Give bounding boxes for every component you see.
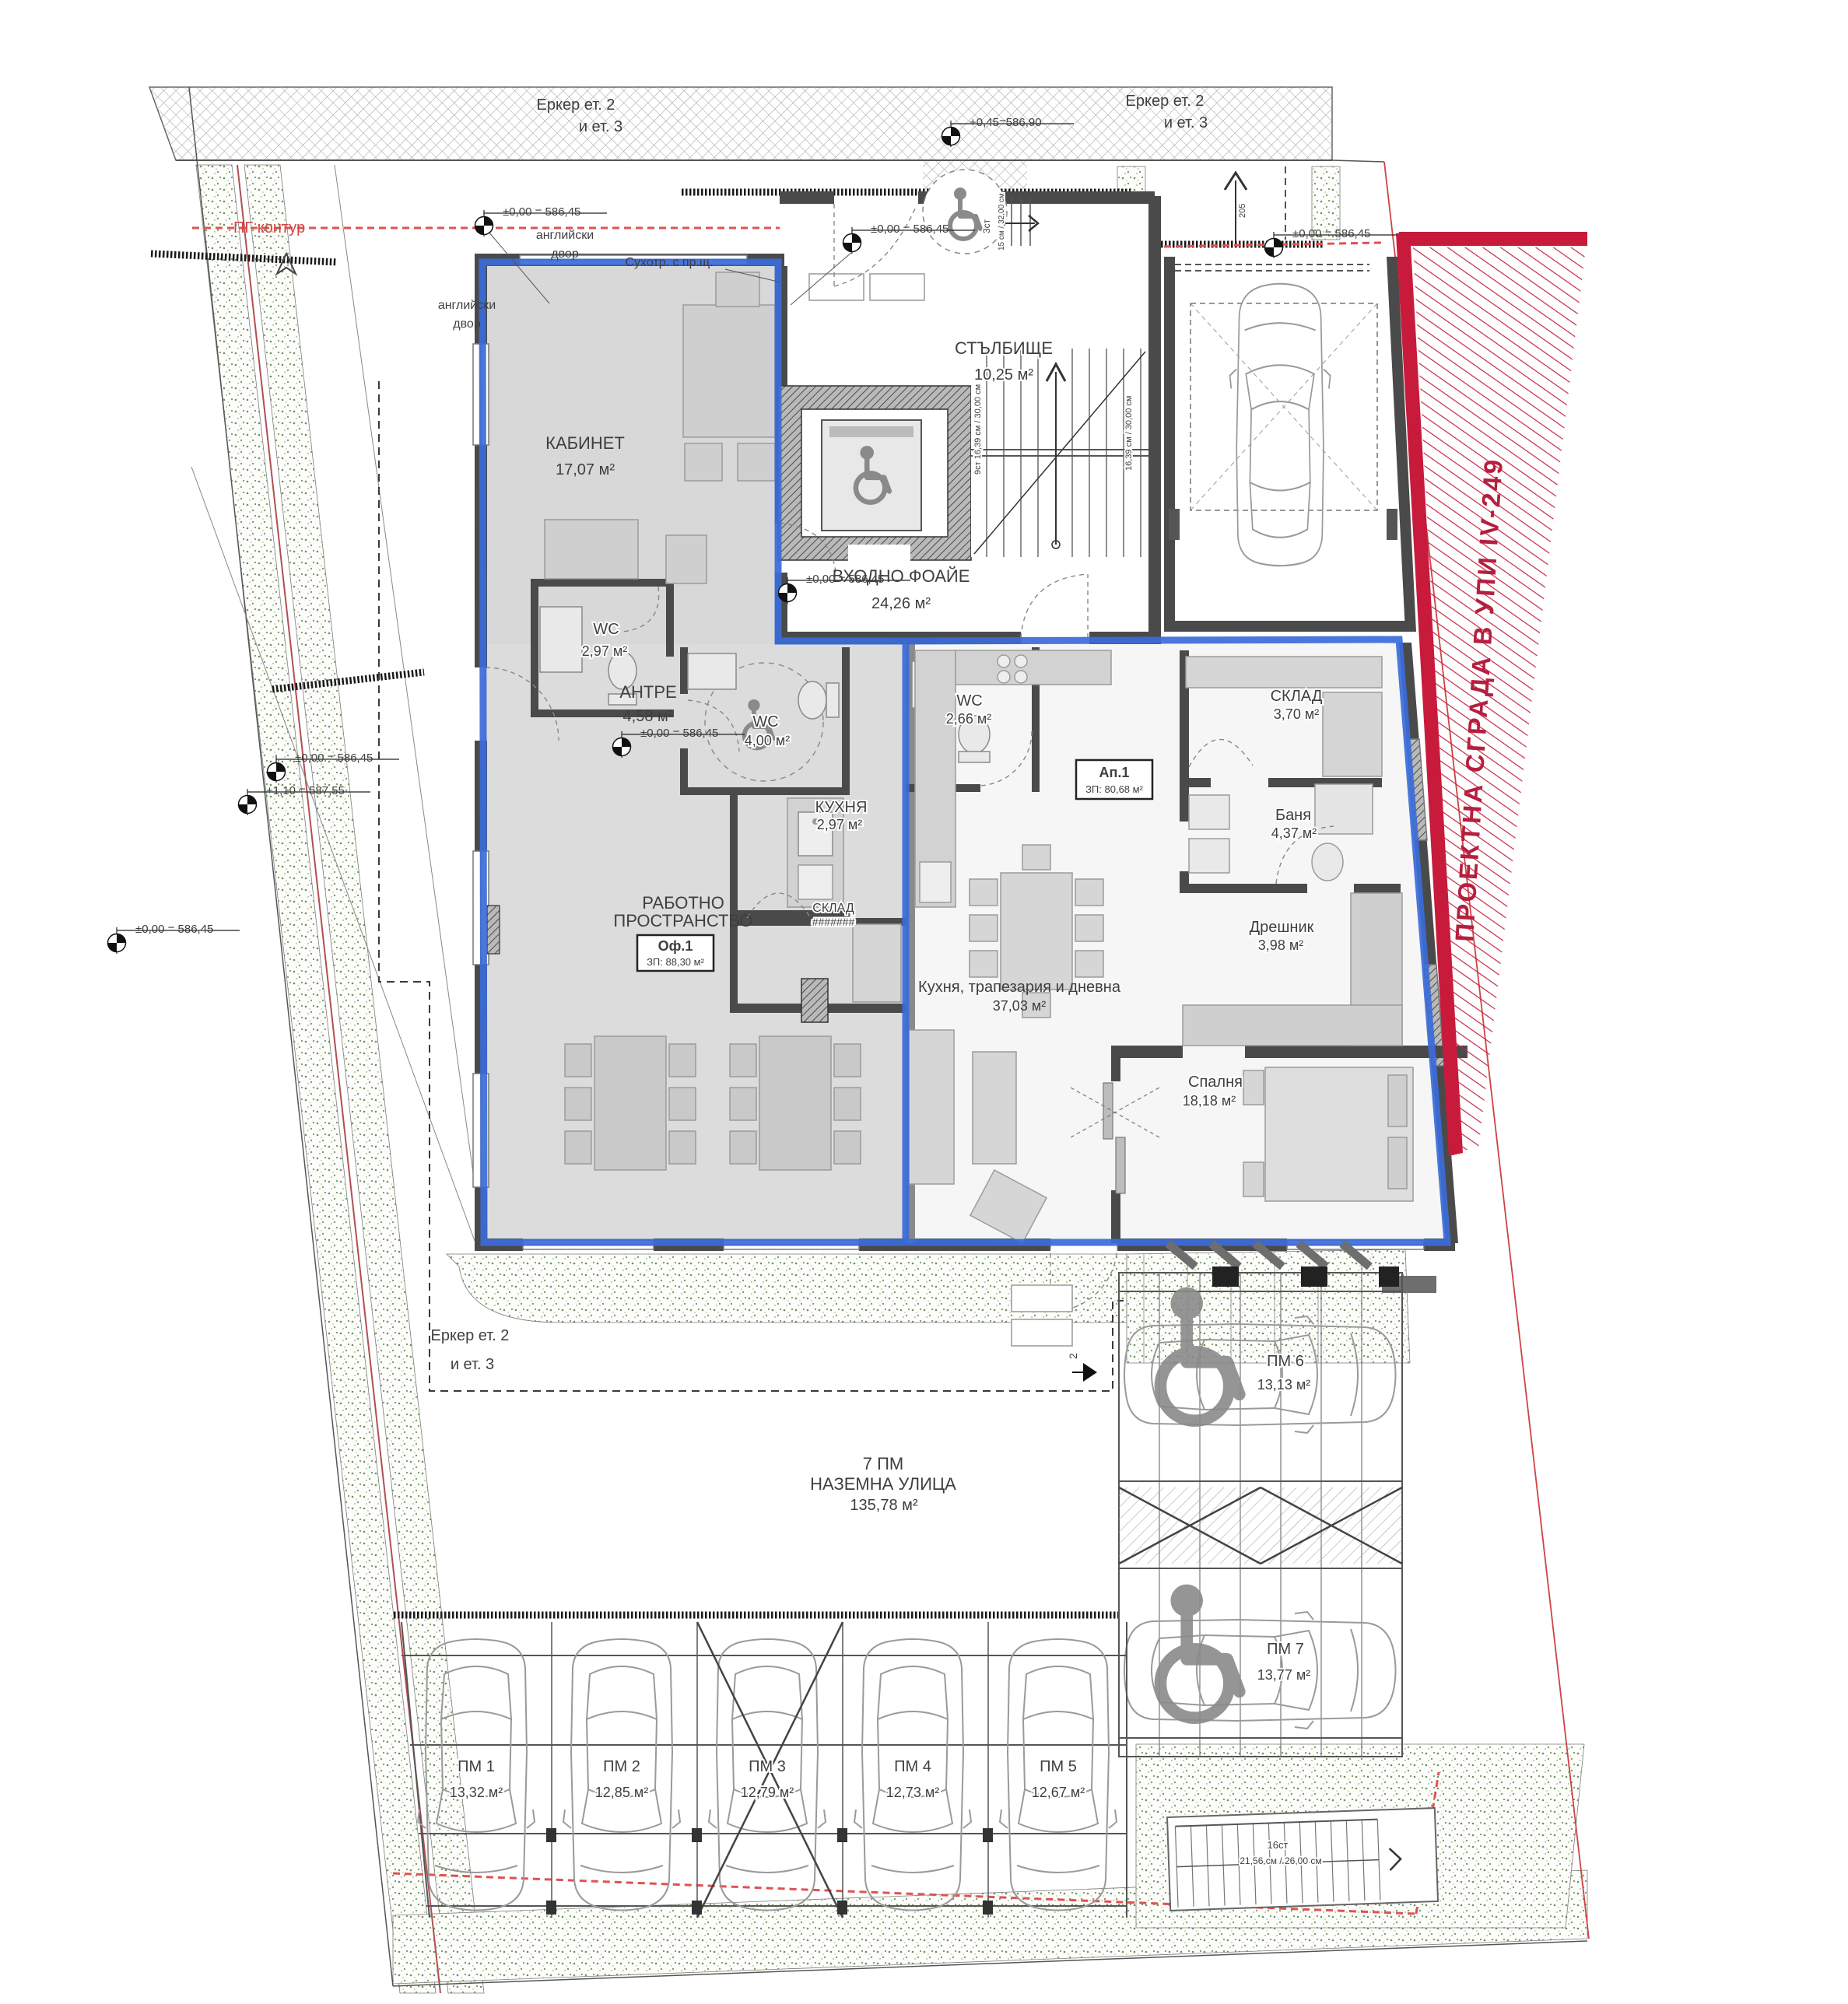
entry-steps-note: 3ст <box>981 219 992 233</box>
parking-pm3-area: 12,79 м² <box>741 1785 794 1800</box>
room-bedroom-name: Спалня <box>1188 1074 1243 1091</box>
room-cabinet-name: КАБИНЕТ <box>545 433 625 453</box>
level-zero-5: ±0,00 = 586,45 <box>640 727 718 740</box>
erker-note-1-line2: и ет. 3 <box>579 118 622 135</box>
level-zero-1: ±0,00 = 586,45 <box>503 205 580 219</box>
room-wc-cabinet-name: WC <box>593 621 619 638</box>
erker-note-1-line1: Еркер ет. 2 <box>537 96 615 114</box>
erker-note-3-line1: Еркер ет. 2 <box>431 1327 510 1344</box>
parking-pm7-name: ПМ 7 <box>1267 1641 1304 1658</box>
parking-pm4-area: 12,73 м² <box>886 1785 939 1800</box>
room-antre-area: 4,58 м² <box>623 708 674 725</box>
english-yard-2-line2: двор <box>453 317 481 331</box>
room-workspace-line2: ПРОСТРАНСТВО <box>613 911 752 930</box>
parking-pm2-area: 12,85 м² <box>595 1785 648 1800</box>
room-bedroom-area: 18,18 м² <box>1183 1093 1236 1109</box>
room-stairwell-area: 10,25 м² <box>974 366 1033 384</box>
radiator <box>487 906 500 954</box>
room-foyer-name: ВХОДНО ФОАЙЕ <box>833 566 970 586</box>
parking-pm5-name: ПМ 5 <box>1040 1758 1077 1775</box>
level-zero-2: ±0,00 = 586,45 <box>871 222 949 236</box>
parking-pm3-name: ПМ 3 <box>749 1758 786 1775</box>
room-living-name: Кухня, трапезария и дневна <box>918 979 1121 996</box>
erker-note-2-line2: и ет. 3 <box>1164 114 1208 131</box>
erker-note-3-line2: и ет. 3 <box>451 1356 494 1373</box>
pg-contour-label: ПГ контур <box>233 219 305 236</box>
radiator <box>801 979 828 1022</box>
room-kitchen-niche-area: 2,97 м² <box>817 817 862 832</box>
parking-pm1-name: ПМ 1 <box>458 1758 495 1775</box>
parking-pm5-area: 12,67 м² <box>1032 1785 1085 1800</box>
parking-pm7-area: 13,77 м² <box>1257 1667 1310 1683</box>
room-stairwell-name: СТЪЛБИЩЕ <box>955 338 1053 358</box>
stair-flight-note-left: 9ст 16,39 см / 30,00 см <box>973 384 983 475</box>
stair-flight-note-right: 16,39 см / 30,00 см <box>1124 396 1134 471</box>
storage-shelf <box>853 924 901 1002</box>
parking-pm1-area: 13,32 м² <box>450 1785 503 1800</box>
room-dressing-area: 3,98 м² <box>1258 937 1303 953</box>
english-yard-1-line1: английски <box>536 229 594 242</box>
room-storage-office-area: ####### <box>812 916 855 928</box>
room-foyer-area: 24,26 м² <box>871 595 931 612</box>
parking-pm4-name: ПМ 4 <box>894 1758 931 1775</box>
apartment-unit-area: ЗП: 80,68 м² <box>1085 783 1144 795</box>
room-storage-office-name: СКЛАД <box>812 902 854 915</box>
ramp-width-dim: 205 <box>1238 204 1247 218</box>
street-line1: 7 ПМ <box>863 1454 904 1473</box>
street-line2: НАЗЕМНА УЛИЦА <box>810 1474 956 1494</box>
room-wc-cabinet-area: 2,97 м² <box>582 643 627 659</box>
room-living-area: 37,03 м² <box>993 998 1046 1014</box>
room-wc-apartment-area: 2,66 м² <box>946 711 991 727</box>
room-antre-name: АНТРЕ <box>619 682 676 702</box>
level-zero-7: ±0,00 = 586,45 <box>135 923 213 936</box>
room-workspace-line1: РАБОТНО <box>642 893 724 913</box>
room-kitchen-niche-name: КУХНЯ <box>815 799 868 816</box>
parking-pm2-name: ПМ 2 <box>603 1758 640 1775</box>
suhotr-note: Сухотр. с пр.щ. <box>625 256 713 269</box>
room-cabinet-area: 17,07 м² <box>556 461 615 478</box>
entry-steps-dim: 15 см / 32,00 см <box>998 193 1006 250</box>
external-stairs-dim: 21,56 см / 26,00 см <box>1240 1855 1321 1866</box>
parking-pm6-name: ПМ 6 <box>1267 1353 1304 1370</box>
room-storage-ap-area: 3,70 м² <box>1274 706 1319 722</box>
room-storage-ap-name: СКЛАД <box>1271 688 1323 705</box>
office-unit-tag: Оф.1 ЗП: 88,30 м² <box>637 935 714 971</box>
apartment-unit-name: Ап.1 <box>1099 765 1130 780</box>
room-wc-accessible-area: 4,00 м² <box>745 733 790 748</box>
english-yard-1-line2: двор <box>551 247 579 261</box>
office-unit-area: ЗП: 88,30 м² <box>647 956 705 968</box>
room-bathroom-name: Баня <box>1275 807 1311 824</box>
room-bathroom-area: 4,37 м² <box>1271 825 1317 841</box>
floor-plan-drawing: Еркер ет. 2 и ет. 3 Еркер ет. 2 и ет. 3 … <box>0 0 1848 2004</box>
level-plus045: +0,45=586,90 <box>970 116 1042 129</box>
parking-pm6-area: 13,13 м² <box>1257 1377 1310 1393</box>
section-number: 2 <box>1067 1353 1079 1359</box>
room-wc-apartment-name: WC <box>956 692 982 709</box>
office-unit-name: Оф.1 <box>658 938 693 954</box>
level-zero-6: ±0,00 = 586,45 <box>295 751 373 765</box>
external-stairs-steps: 16ст <box>1268 1839 1289 1851</box>
level-plus110: +1,10 = 587,55 <box>266 784 345 797</box>
apartment-unit-tag: Ап.1 ЗП: 80,68 м² <box>1076 760 1152 799</box>
erker-note-2-line1: Еркер ет. 2 <box>1126 93 1205 110</box>
english-yard-2-line1: английски <box>438 299 496 312</box>
level-zero-3: ±0,00 = 586,45 <box>1292 227 1370 240</box>
room-dressing-name: Дрешник <box>1250 919 1314 936</box>
street-area: 135,78 м² <box>850 1497 917 1514</box>
room-wc-accessible-name: WC <box>752 713 778 730</box>
